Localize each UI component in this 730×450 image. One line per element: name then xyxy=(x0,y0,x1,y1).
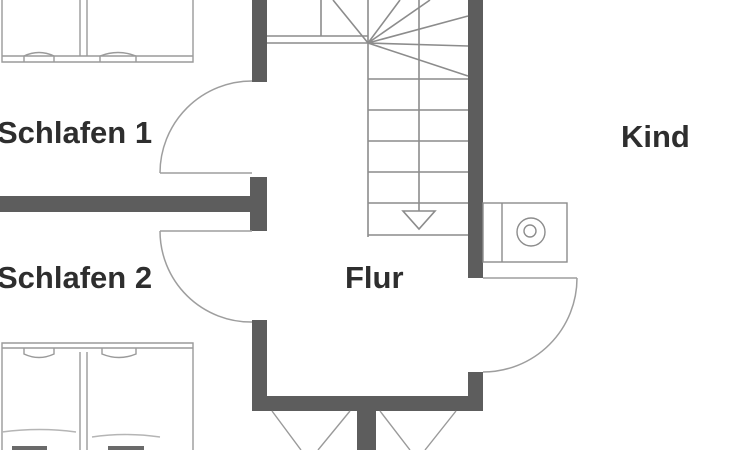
floor-plan: Schlafen 1 Schlafen 2 Flur Kind xyxy=(0,0,730,450)
chimney-outline xyxy=(483,203,567,262)
bed2-mattress-divider xyxy=(80,352,87,450)
chimney-flue-inner-icon xyxy=(524,225,536,237)
bed2-duvet-line-right xyxy=(92,435,160,438)
bed-schlafen2 xyxy=(2,343,193,450)
door-schlafen1 xyxy=(160,81,252,173)
stair-winder-treads xyxy=(333,0,468,76)
floor-plan-drawing xyxy=(0,0,730,450)
door-arc-schlafen1 xyxy=(160,81,252,173)
door-arc-kind xyxy=(483,278,577,372)
window-casement-left-icon xyxy=(272,411,350,450)
wall-left-pillar xyxy=(250,177,267,231)
door-schlafen2 xyxy=(160,231,252,322)
bed-schlafen1 xyxy=(2,0,193,62)
stair-landing-edge xyxy=(267,36,368,43)
door-arc-schlafen2 xyxy=(160,231,252,322)
chimney-fixture xyxy=(483,203,567,262)
bed2-frame xyxy=(2,343,193,450)
wall-bedroom-divider xyxy=(0,196,252,212)
room-label-flur: Flur xyxy=(345,262,404,293)
door-kind xyxy=(483,278,577,372)
bed1-mattress-divider xyxy=(80,0,87,56)
bed2-duvet-line-left xyxy=(2,430,76,433)
bed2-dark-edge-right xyxy=(108,446,144,450)
wall-bottom xyxy=(252,396,483,411)
staircase xyxy=(267,0,468,237)
bed2-pillow-right xyxy=(102,348,136,358)
wall-left-top xyxy=(252,0,267,82)
wall-right-stub xyxy=(468,372,483,411)
stair-direction-arrow-icon xyxy=(403,211,435,229)
bed1-duvet-fold-right xyxy=(100,53,136,63)
bed1-frame xyxy=(2,0,193,62)
walls xyxy=(0,0,483,450)
room-label-schlafen1: Schlafen 1 xyxy=(0,117,152,148)
room-label-schlafen2: Schlafen 2 xyxy=(0,262,152,293)
wall-right xyxy=(468,0,483,278)
room-label-kind: Kind xyxy=(621,121,690,152)
window-casement-right-icon xyxy=(380,411,456,450)
bed1-duvet-fold-left xyxy=(24,53,54,63)
chimney-flue-icon xyxy=(517,218,545,246)
wall-window-post xyxy=(357,411,376,450)
bed2-dark-edge-left xyxy=(12,446,47,450)
bed2-pillow-left xyxy=(24,348,54,358)
